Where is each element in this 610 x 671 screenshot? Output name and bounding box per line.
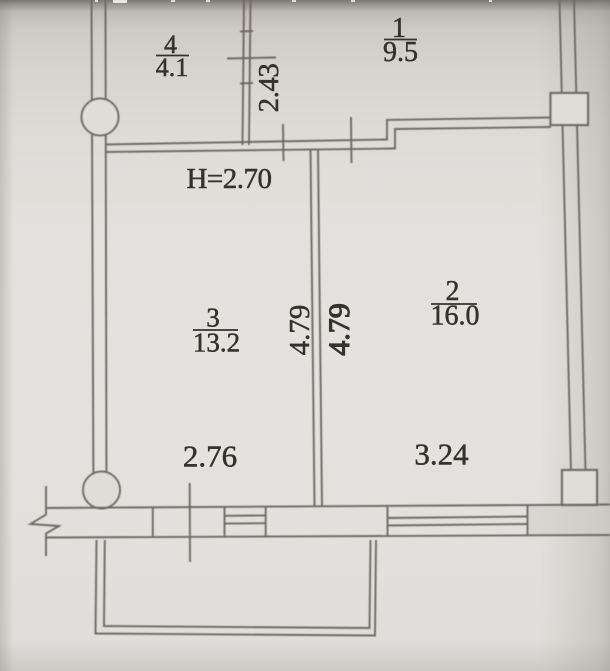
svg-text:3.24: 3.24 [414, 437, 469, 472]
svg-text:2.76: 2.76 [183, 439, 237, 474]
svg-text:13.2: 13.2 [193, 328, 240, 358]
svg-text:4.79: 4.79 [284, 305, 316, 356]
svg-text:9.5: 9.5 [383, 37, 418, 68]
svg-text:4.79: 4.79 [323, 303, 356, 356]
svg-text:2.43: 2.43 [253, 64, 285, 113]
svg-text:16.0: 16.0 [431, 301, 480, 332]
svg-text:4.1: 4.1 [156, 53, 189, 82]
svg-text:H=2.70: H=2.70 [186, 163, 271, 195]
